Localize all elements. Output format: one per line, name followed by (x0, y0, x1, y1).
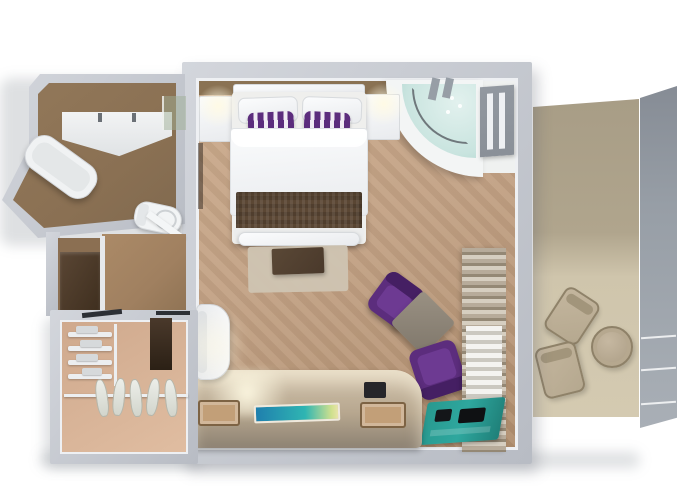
suite-floorplan-render (0, 0, 680, 486)
closet-door-track (156, 311, 190, 315)
closet-shelf-divider (114, 324, 117, 386)
folded-towels (80, 340, 102, 347)
mirror-panel (150, 318, 172, 370)
room-closet (0, 0, 680, 486)
folded-towels (76, 326, 98, 333)
folded-towels (82, 368, 102, 375)
folded-towels (76, 354, 98, 361)
